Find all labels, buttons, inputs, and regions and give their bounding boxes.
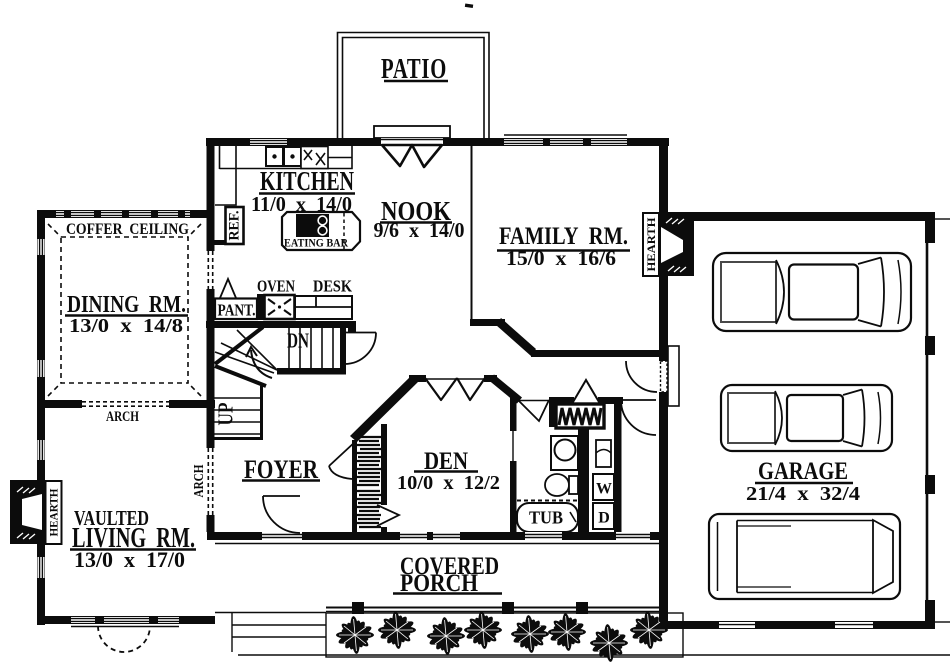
svg-text:10/0 x 12/2: 10/0 x 12/2 bbox=[397, 472, 500, 494]
svg-text:REF.: REF. bbox=[227, 211, 243, 241]
svg-text:DN: DN bbox=[287, 329, 309, 353]
svg-text:OVEN: OVEN bbox=[257, 277, 296, 296]
svg-text:9/6 x 14/0: 9/6 x 14/0 bbox=[374, 218, 465, 242]
svg-text:TUB: TUB bbox=[529, 508, 563, 528]
svg-text:13/0 x 17/0: 13/0 x 17/0 bbox=[74, 547, 185, 572]
svg-text:ARCH: ARCH bbox=[192, 464, 207, 497]
svg-text:D: D bbox=[598, 510, 610, 527]
svg-text:W: W bbox=[596, 481, 612, 498]
svg-text:13/0 x 14/8: 13/0 x 14/8 bbox=[69, 315, 183, 337]
svg-text:15/0 x 16/6: 15/0 x 16/6 bbox=[506, 246, 616, 270]
svg-text:EATING BAR: EATING BAR bbox=[284, 236, 348, 250]
svg-text:UP: UP bbox=[214, 402, 238, 425]
svg-text:GARAGE: GARAGE bbox=[758, 458, 848, 485]
svg-text:PANT.: PANT. bbox=[218, 301, 256, 320]
svg-text:ARCH: ARCH bbox=[106, 409, 139, 425]
svg-text:HEARTH: HEARTH bbox=[47, 488, 61, 537]
svg-text:HEARTH: HEARTH bbox=[644, 217, 658, 272]
svg-text:21/4 x 32/4: 21/4 x 32/4 bbox=[746, 483, 860, 505]
svg-text:DESK: DESK bbox=[313, 277, 353, 296]
svg-text:COFFER CEILING: COFFER CEILING bbox=[66, 221, 189, 238]
